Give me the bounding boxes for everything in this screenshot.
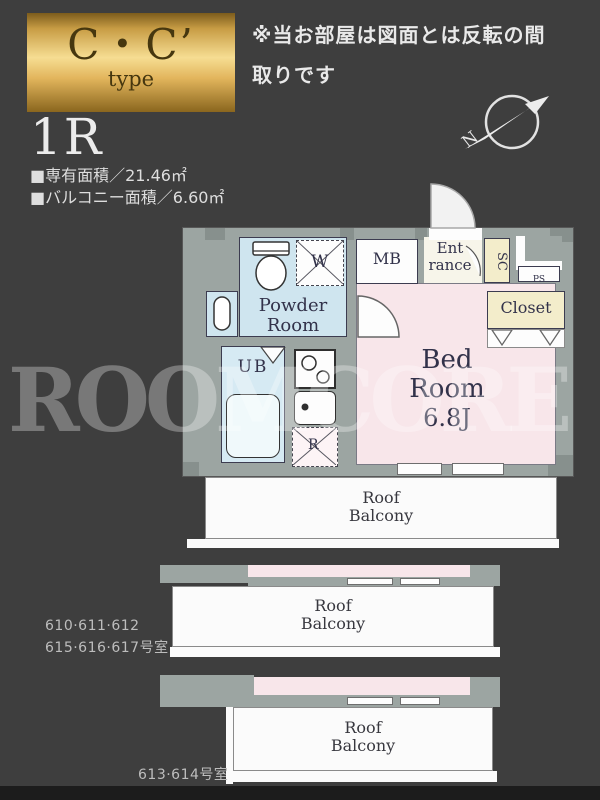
balcony-label-line1: Roof [173,597,493,615]
powder-label-line1: Powder [239,296,347,316]
section-3-wall-right [470,677,500,707]
unit-numbers-upper-line1: 610·611·612 [45,618,140,634]
mb-label: MB [356,250,418,268]
powder-label-line2: Room [239,316,347,336]
sink-cell [206,291,238,337]
balcony-label-line1: Roof [206,489,556,507]
section-2-wall [160,565,248,583]
ps-niche-inner [525,236,562,261]
sc-door-arc-icon [464,243,484,281]
wall-pillar [205,228,225,240]
bedroom-door-arc-icon [356,294,402,340]
balcony-2-rail [170,647,500,657]
hanger-icons [488,330,564,347]
powder-room-label: Powder Room [239,296,347,336]
window-opening [397,463,442,475]
badge-title: C・C’ [27,23,235,67]
badge-subtitle: type [27,69,235,89]
ps-box: PS [518,266,560,282]
ub-door-notch-icon [260,347,286,365]
window-opening [452,463,504,475]
note-line-1: ※当お部屋は図面とは反転の間 [252,15,582,55]
kitchen-sink-icon [294,391,336,425]
balcony-label-line2: Balcony [206,507,556,525]
section-2-wall-right [470,565,500,586]
floorplan-page: C・C’ type ※当お部屋は図面とは反転の間 取りです 1R ■専有面積／2… [0,0,600,800]
roof-balcony-label: Roof Balcony [206,489,556,525]
bedroom-label-line2: Room [377,375,517,404]
toilet-icon [248,240,296,292]
balcony-area-label: ■バルコニー面積／6.60㎡ [30,184,224,208]
sink-icon [207,292,237,336]
section-2-room-strip [248,565,470,577]
unit-numbers-upper-line2: 615·616·617号室 [45,637,169,657]
window-opening [347,697,393,705]
washer-label: W [311,253,328,272]
closet-label: Closet [487,299,565,317]
bedroom-size-label: 6.8J [377,404,517,433]
fridge-box: R [292,427,338,467]
balcony-label-line2: Balcony [234,737,492,755]
bedroom-label: Bed Room 6.8J [377,346,517,433]
unit-numbers-lower: 613·614号室 [138,764,228,784]
section-3-wall [160,675,254,707]
roof-balcony-2: Roof Balcony [172,586,494,647]
balcony-label-line2: Balcony [173,615,493,633]
bathtub-icon [226,394,280,458]
balcony-label-line1: Roof [234,719,492,737]
window-opening [400,697,440,705]
window-opening [400,578,440,585]
wall-pillar [183,462,199,476]
bottom-bar [0,786,600,800]
bedroom-label-line1: Bed [377,346,517,375]
type-badge: C・C’ type [27,13,235,112]
fridge-label: R [308,438,319,454]
balcony-3-rail [226,771,497,782]
section-3-room-strip [254,677,470,695]
exclusive-area-label: ■専有面積／21.46㎡ [30,162,187,186]
stove-icon [294,349,336,389]
balcony-1-rail [187,539,559,548]
closet-hanger-strip [487,329,565,348]
roof-balcony-1: Roof Balcony [205,477,557,539]
washer-box: W [296,240,344,286]
plan-type-label: 1R [30,108,103,166]
roof-balcony-label: Roof Balcony [234,719,492,755]
roof-balcony-label: Roof Balcony [173,597,493,633]
roof-balcony-3: Roof Balcony [233,707,493,771]
window-opening [347,578,393,585]
sc-label: SC [486,241,508,281]
ps-label: PS [533,275,545,285]
entrance-door-arc-icon [427,180,485,230]
